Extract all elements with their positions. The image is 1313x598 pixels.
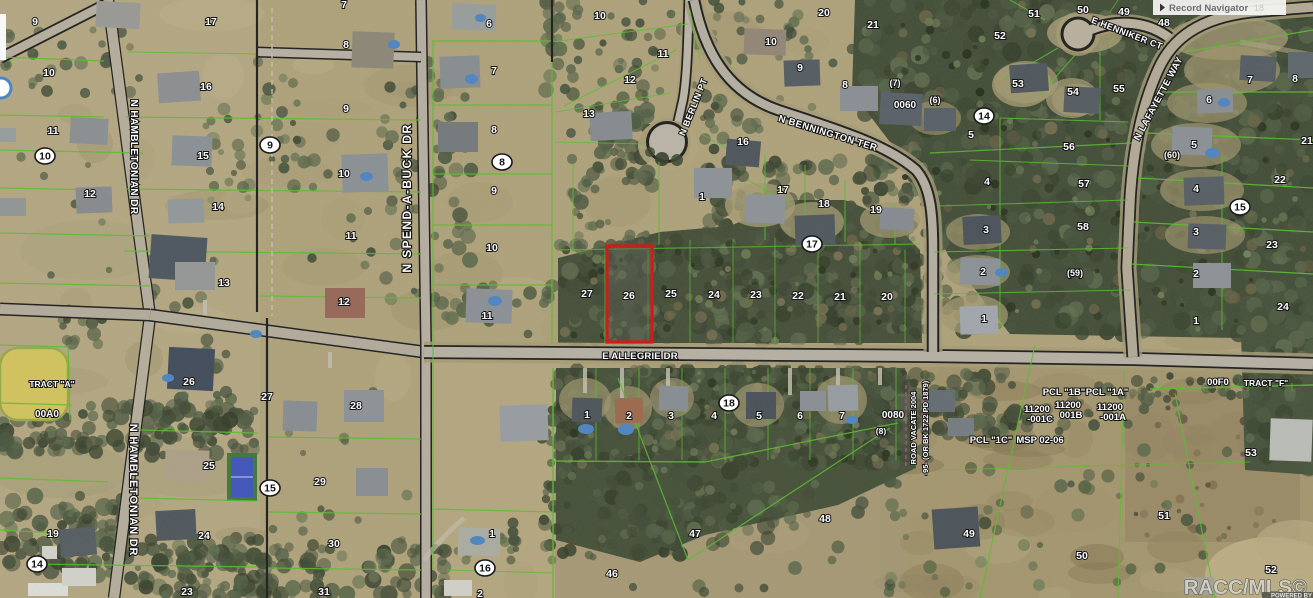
svg-text:12: 12 bbox=[84, 188, 96, 200]
svg-text:-001C: -001C bbox=[1027, 414, 1053, 425]
svg-text:5: 5 bbox=[1191, 139, 1197, 151]
svg-text:TRACT "F": TRACT "F" bbox=[1244, 378, 1288, 388]
svg-text:10: 10 bbox=[39, 151, 51, 163]
svg-text:-95- (OR BK 1722 PD 1879): -95- (OR BK 1722 PD 1879) bbox=[921, 380, 930, 475]
svg-text:17: 17 bbox=[806, 239, 818, 251]
svg-text:4: 4 bbox=[1193, 183, 1199, 195]
svg-text:5: 5 bbox=[756, 410, 762, 422]
svg-text:3: 3 bbox=[983, 224, 989, 236]
svg-text:25: 25 bbox=[203, 460, 215, 472]
svg-text:23: 23 bbox=[750, 289, 762, 301]
svg-text:9: 9 bbox=[32, 16, 38, 28]
svg-text:4: 4 bbox=[711, 410, 717, 422]
svg-text:53: 53 bbox=[1245, 447, 1257, 459]
svg-text:12: 12 bbox=[624, 74, 636, 86]
svg-text:21: 21 bbox=[834, 291, 846, 303]
svg-text:(60): (60) bbox=[1164, 150, 1180, 160]
svg-text:16: 16 bbox=[479, 563, 491, 575]
svg-text:19: 19 bbox=[870, 204, 882, 216]
svg-text:55: 55 bbox=[1113, 83, 1125, 95]
svg-text:9: 9 bbox=[343, 103, 349, 115]
svg-text:16: 16 bbox=[200, 81, 212, 93]
svg-text:23: 23 bbox=[1266, 239, 1278, 251]
svg-text:10: 10 bbox=[594, 10, 606, 22]
svg-text:15: 15 bbox=[197, 150, 209, 162]
svg-text:26: 26 bbox=[183, 376, 195, 388]
svg-text:1: 1 bbox=[489, 528, 495, 540]
svg-text:14: 14 bbox=[212, 201, 224, 213]
svg-text:16: 16 bbox=[737, 136, 749, 148]
svg-text:N HAMBLETONIAN DR: N HAMBLETONIAN DR bbox=[127, 424, 139, 557]
svg-text:15: 15 bbox=[264, 483, 276, 495]
svg-text:8: 8 bbox=[499, 157, 505, 169]
svg-text:48: 48 bbox=[1158, 17, 1170, 29]
svg-text:ROAD VACATE 2004: ROAD VACATE 2004 bbox=[909, 391, 918, 464]
svg-text:POWERED BY: POWERED BY bbox=[1271, 594, 1312, 598]
svg-text:27: 27 bbox=[261, 391, 273, 403]
svg-text:51: 51 bbox=[1158, 510, 1170, 522]
svg-text:53: 53 bbox=[1012, 78, 1024, 90]
svg-text:7: 7 bbox=[839, 410, 845, 422]
svg-text:21: 21 bbox=[1301, 135, 1313, 147]
svg-text:24: 24 bbox=[1277, 301, 1289, 313]
svg-text:8: 8 bbox=[491, 124, 497, 136]
svg-text:18: 18 bbox=[723, 398, 735, 410]
svg-text:10: 10 bbox=[765, 36, 777, 48]
svg-text:001B: 001B bbox=[1060, 410, 1083, 421]
svg-text:51: 51 bbox=[1028, 8, 1040, 20]
svg-text:8: 8 bbox=[842, 79, 848, 91]
svg-text:29: 29 bbox=[314, 476, 326, 488]
svg-text:17: 17 bbox=[777, 184, 789, 196]
svg-text:10: 10 bbox=[338, 168, 350, 180]
svg-text:5: 5 bbox=[968, 129, 974, 141]
svg-text:57: 57 bbox=[1078, 178, 1090, 190]
svg-text:27: 27 bbox=[581, 288, 593, 300]
svg-text:25: 25 bbox=[665, 288, 677, 300]
svg-text:31: 31 bbox=[318, 586, 330, 598]
svg-text:11: 11 bbox=[657, 48, 668, 60]
svg-text:12: 12 bbox=[338, 296, 350, 308]
svg-text:-001A: -001A bbox=[1100, 412, 1126, 423]
svg-text:24: 24 bbox=[708, 289, 720, 301]
svg-text:30: 30 bbox=[328, 538, 340, 550]
svg-text:11: 11 bbox=[481, 310, 492, 322]
svg-text:6: 6 bbox=[797, 410, 803, 422]
svg-text:50: 50 bbox=[1076, 550, 1088, 562]
svg-text:58: 58 bbox=[1077, 221, 1089, 233]
svg-text:14: 14 bbox=[31, 559, 43, 571]
svg-text:00F0: 00F0 bbox=[1207, 377, 1229, 388]
svg-text:PCL "1B": PCL "1B" bbox=[1043, 387, 1086, 398]
svg-text:7: 7 bbox=[491, 65, 497, 77]
svg-text:7: 7 bbox=[341, 0, 347, 11]
svg-text:2: 2 bbox=[626, 410, 632, 422]
svg-text:47: 47 bbox=[689, 528, 701, 540]
svg-text:(6): (6) bbox=[930, 95, 941, 105]
svg-text:48: 48 bbox=[819, 513, 831, 525]
svg-text:MSP 02-06: MSP 02-06 bbox=[1016, 435, 1063, 446]
svg-text:49: 49 bbox=[1118, 6, 1130, 18]
svg-text:11: 11 bbox=[345, 230, 356, 242]
svg-text:3: 3 bbox=[1193, 226, 1199, 238]
svg-text:10: 10 bbox=[43, 67, 55, 79]
svg-text:00A0: 00A0 bbox=[35, 409, 59, 420]
svg-text:23: 23 bbox=[181, 586, 193, 598]
svg-text:9: 9 bbox=[491, 185, 497, 197]
svg-text:N HAMBLETONIAN DR: N HAMBLETONIAN DR bbox=[128, 100, 139, 215]
svg-text:2: 2 bbox=[980, 266, 986, 278]
svg-text:21: 21 bbox=[867, 19, 879, 31]
svg-text:4: 4 bbox=[984, 176, 990, 188]
svg-text:8: 8 bbox=[343, 39, 349, 51]
svg-text:1: 1 bbox=[1193, 315, 1199, 327]
svg-text:11: 11 bbox=[47, 125, 58, 137]
svg-text:6: 6 bbox=[1206, 94, 1212, 106]
svg-text:(8): (8) bbox=[876, 426, 887, 436]
svg-text:46: 46 bbox=[606, 568, 618, 580]
svg-text:1: 1 bbox=[981, 313, 987, 325]
svg-text:Record Navigator: Record Navigator bbox=[1169, 3, 1248, 14]
svg-text:28: 28 bbox=[350, 400, 362, 412]
svg-text:20: 20 bbox=[881, 291, 893, 303]
svg-text:14: 14 bbox=[978, 111, 990, 123]
svg-text:54: 54 bbox=[1067, 86, 1079, 98]
svg-text:8: 8 bbox=[1292, 73, 1298, 85]
svg-text:50: 50 bbox=[1077, 4, 1089, 16]
svg-text:26: 26 bbox=[623, 290, 635, 302]
svg-text:9: 9 bbox=[797, 62, 803, 74]
svg-text:PCL "1C": PCL "1C" bbox=[970, 435, 1013, 446]
svg-text:13: 13 bbox=[218, 277, 230, 289]
svg-text:18: 18 bbox=[818, 198, 830, 210]
svg-text:22: 22 bbox=[1274, 174, 1286, 186]
svg-text:10: 10 bbox=[486, 242, 498, 254]
svg-text:13: 13 bbox=[583, 108, 595, 120]
svg-text:1: 1 bbox=[699, 191, 705, 203]
svg-text:E ALLEGRIE DR: E ALLEGRIE DR bbox=[602, 351, 678, 362]
svg-text:PCL "1A": PCL "1A" bbox=[1086, 387, 1129, 398]
svg-text:15: 15 bbox=[1234, 202, 1246, 214]
svg-text:17: 17 bbox=[205, 16, 217, 28]
svg-text:52: 52 bbox=[994, 30, 1006, 42]
svg-text:0060: 0060 bbox=[894, 100, 917, 111]
svg-text:52: 52 bbox=[1265, 564, 1277, 576]
svg-text:22: 22 bbox=[792, 290, 804, 302]
svg-text:6: 6 bbox=[486, 18, 492, 30]
svg-text:TRACT "A": TRACT "A" bbox=[29, 379, 74, 389]
svg-text:9: 9 bbox=[267, 140, 273, 152]
svg-text:7: 7 bbox=[1247, 74, 1253, 86]
svg-text:20: 20 bbox=[818, 7, 830, 19]
svg-text:24: 24 bbox=[198, 530, 210, 542]
svg-text:(7): (7) bbox=[890, 78, 901, 88]
svg-text:56: 56 bbox=[1063, 141, 1075, 153]
svg-text:19: 19 bbox=[47, 528, 59, 540]
svg-text:0080: 0080 bbox=[882, 410, 905, 421]
svg-text:N SPEND-A-BUCK DR: N SPEND-A-BUCK DR bbox=[400, 123, 414, 272]
svg-text:1: 1 bbox=[584, 409, 590, 421]
svg-text:2: 2 bbox=[1193, 268, 1199, 280]
svg-text:49: 49 bbox=[963, 528, 975, 540]
svg-text:3: 3 bbox=[668, 410, 674, 422]
svg-text:(59): (59) bbox=[1067, 268, 1083, 278]
svg-text:2: 2 bbox=[477, 588, 483, 598]
svg-text:18: 18 bbox=[1254, 3, 1264, 13]
